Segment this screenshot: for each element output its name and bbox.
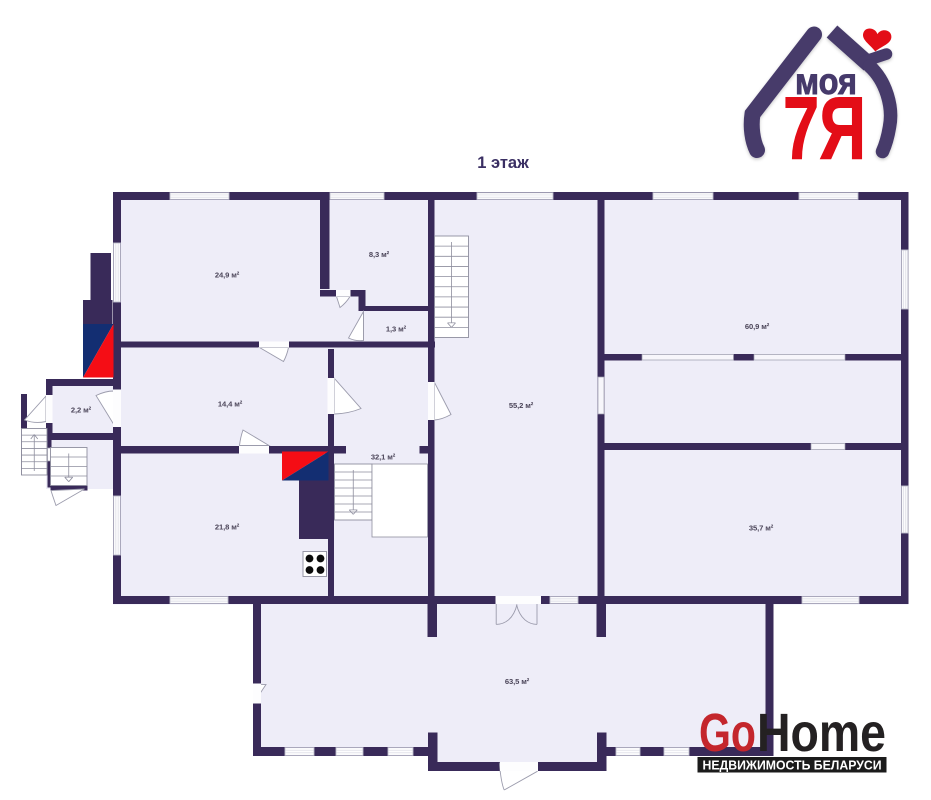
svg-text:Go: Go: [699, 703, 756, 763]
svg-text:1 этаж: 1 этаж: [477, 154, 529, 172]
svg-text:35,7 м²: 35,7 м²: [749, 524, 774, 533]
svg-text:24,9 м²: 24,9 м²: [215, 271, 240, 280]
svg-text:НЕДВИЖИМОСТЬ БЕЛАРУСИ: НЕДВИЖИМОСТЬ БЕЛАРУСИ: [703, 758, 882, 773]
svg-text:Home: Home: [757, 703, 886, 763]
svg-text:1,3 м²: 1,3 м²: [386, 325, 407, 334]
svg-text:63,5 м²: 63,5 м²: [505, 677, 530, 686]
svg-text:14,4 м²: 14,4 м²: [218, 400, 243, 409]
svg-text:7Я: 7Я: [783, 78, 866, 178]
svg-text:32,1 м²: 32,1 м²: [371, 453, 396, 462]
svg-text:60,9 м²: 60,9 м²: [745, 322, 770, 331]
svg-text:2,2 м²: 2,2 м²: [71, 406, 92, 415]
svg-text:21,8 м²: 21,8 м²: [215, 523, 240, 532]
svg-text:55,2 м²: 55,2 м²: [509, 401, 534, 410]
svg-text:8,3 м²: 8,3 м²: [369, 250, 390, 259]
